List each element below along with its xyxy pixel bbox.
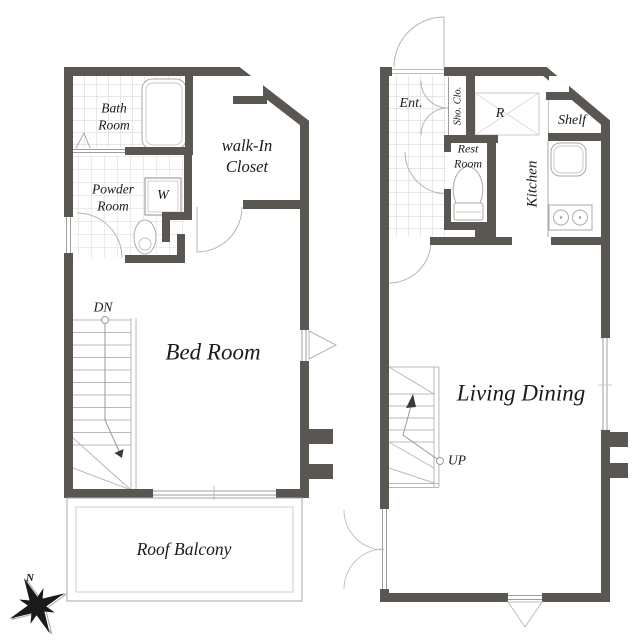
floor2-corner-step [233, 96, 267, 104]
walk-in-closet-label: walk-InCloset [222, 135, 272, 177]
floor2-stub-1 [309, 429, 333, 444]
bath-sliding-door [73, 150, 125, 153]
awning-window-symbol [309, 331, 336, 359]
roof-balcony-label: Roof Balcony [137, 538, 232, 560]
entrance-label: Ent. [400, 95, 423, 113]
closet-door [197, 207, 242, 252]
bathtub [142, 79, 186, 149]
floor2-stub-2 [309, 464, 333, 479]
floor-plan-drawing [0, 0, 640, 640]
rest-room-label: RestRoom [454, 142, 482, 173]
floor1-stub-2 [610, 463, 628, 478]
entrance-door [392, 17, 444, 76]
floor1-unit [344, 17, 628, 627]
floor1-stub-1 [610, 432, 628, 447]
washer-label: W [157, 187, 169, 205]
living-dining-label: Living Dining [457, 378, 585, 407]
powder-room-label: PowderRoom [92, 181, 134, 216]
stairs-down-label: DN [94, 298, 113, 315]
stairs-up-arrowhead [406, 394, 416, 408]
basin [134, 220, 156, 254]
living-door-arc [389, 241, 431, 283]
stairs-down-start [102, 317, 109, 324]
refrigerator-label: R [496, 105, 505, 123]
stairs-up [389, 367, 444, 488]
refrigerator-space [475, 93, 539, 135]
floor1-corner-notch [549, 76, 569, 94]
bottom-window-symbol [508, 602, 542, 627]
stairs-up-start [437, 458, 444, 465]
shoe-closet-label: Sho. Clo. [451, 87, 464, 126]
compass-north-label: N [26, 571, 34, 585]
floor2-unit [64, 67, 337, 601]
stairs-up-label: UP [448, 451, 466, 468]
bath-room-label: BathRoom [98, 100, 130, 135]
floor-plan-canvas: BathRoom PowderRoom walk-InCloset W DN B… [0, 0, 640, 640]
stairs-down [73, 317, 136, 491]
bed-room-label: Bed Room [165, 337, 260, 366]
shelf-label: Shelf [558, 112, 586, 130]
floor1-corner-step [546, 92, 574, 100]
floor2-corner-notch [237, 76, 263, 98]
toilet [453, 166, 483, 220]
kitchen-label: Kitchen [523, 161, 542, 208]
